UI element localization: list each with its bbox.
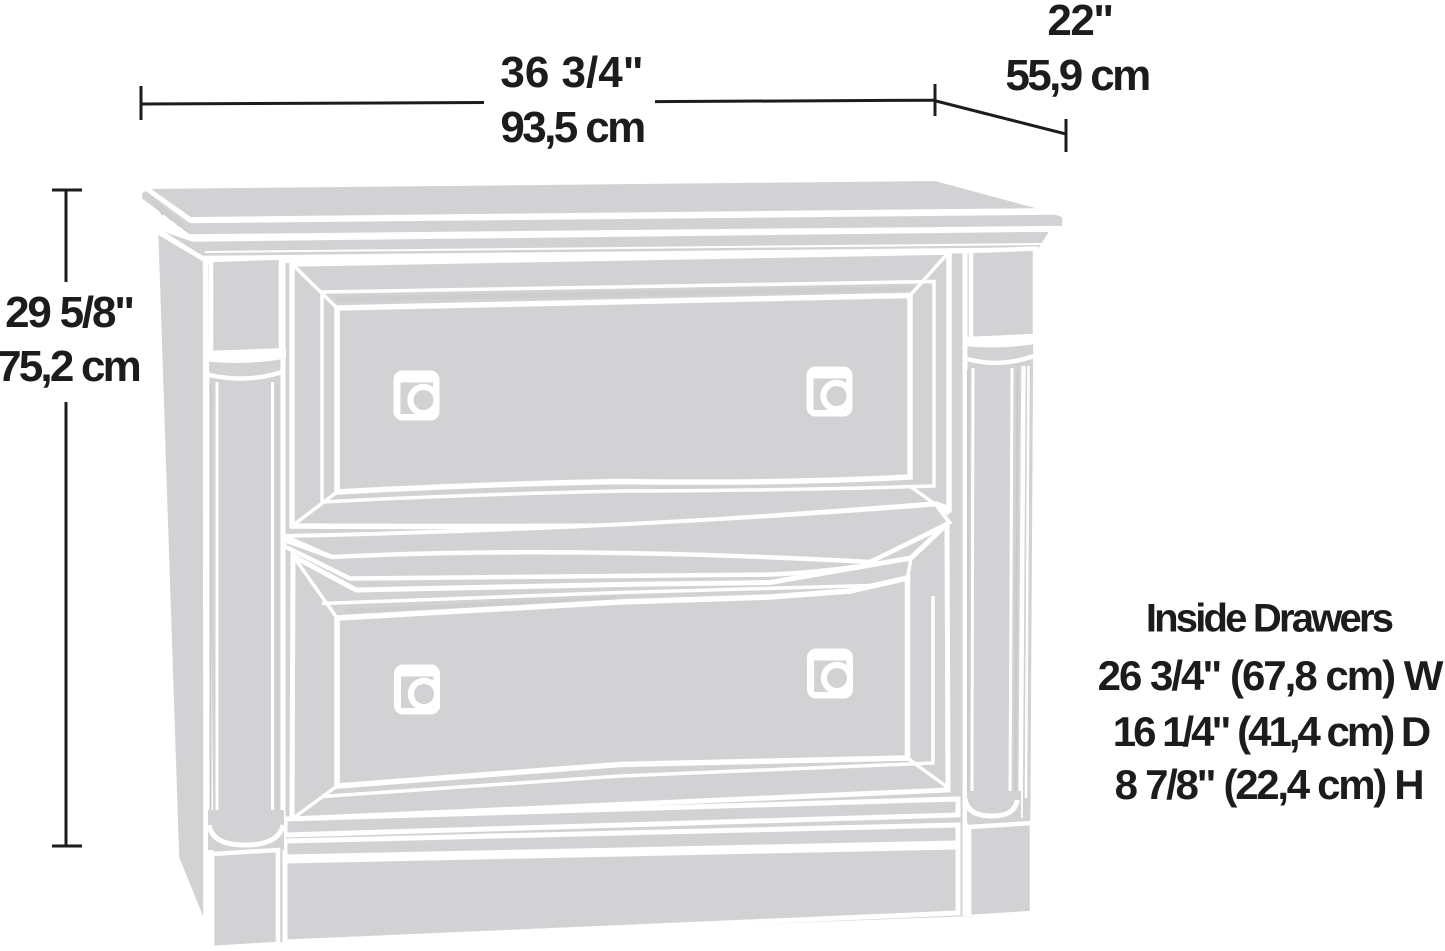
- svg-text:Inside Drawers: Inside Drawers: [1146, 597, 1393, 641]
- svg-text:93,5 cm: 93,5 cm: [500, 103, 644, 152]
- svg-text:75,2 cm: 75,2 cm: [0, 342, 140, 391]
- svg-text:29 5/8": 29 5/8": [5, 288, 133, 337]
- svg-text:55,9 cm: 55,9 cm: [1005, 51, 1149, 100]
- svg-text:22": 22": [1047, 0, 1112, 45]
- svg-text:36 3/4": 36 3/4": [500, 48, 643, 97]
- svg-text:8 7/8" (22,4 cm) H: 8 7/8" (22,4 cm) H: [1115, 761, 1423, 808]
- svg-text:26 3/4" (67,8 cm) W: 26 3/4" (67,8 cm) W: [1098, 652, 1444, 699]
- svg-text:16 1/4" (41,4 cm) D: 16 1/4" (41,4 cm) D: [1113, 708, 1430, 755]
